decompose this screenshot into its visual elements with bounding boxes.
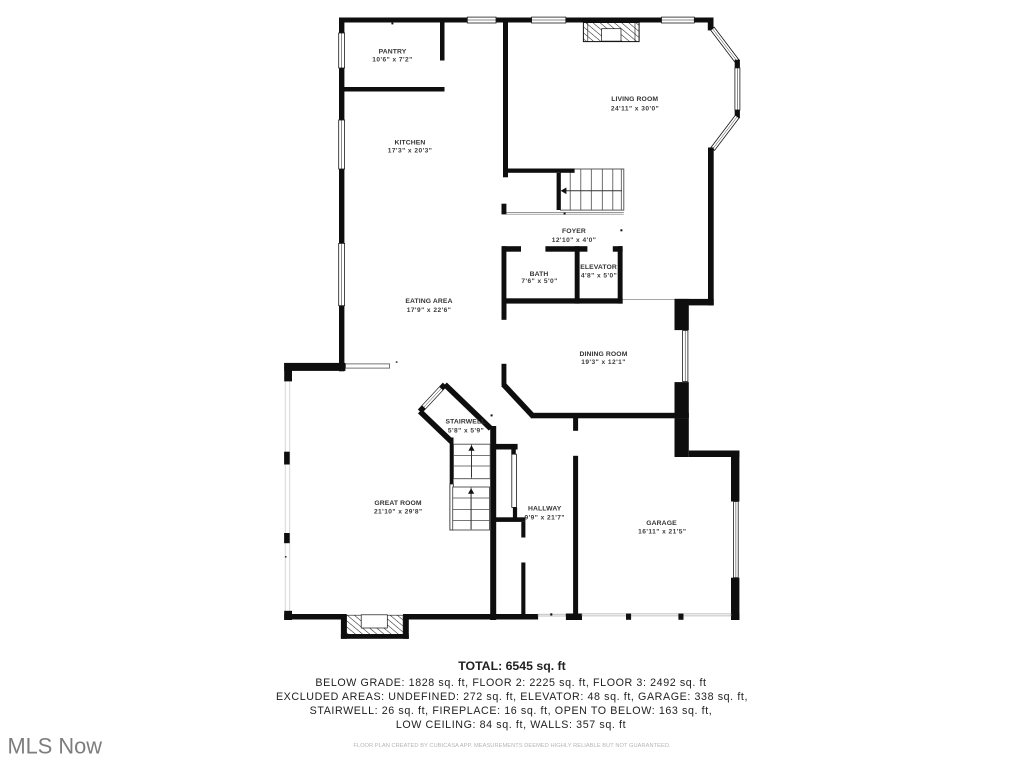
svg-text:17'9" x 22'6": 17'9" x 22'6"	[407, 307, 452, 314]
svg-text:7'6" x 5'0": 7'6" x 5'0"	[521, 278, 557, 285]
svg-text:LIVING ROOM: LIVING ROOM	[611, 96, 658, 103]
svg-text:STAIRWELL: 26 sq. ft, FIREPLAC: STAIRWELL: 26 sq. ft, FIREPLACE: 16 sq. …	[310, 705, 713, 717]
svg-text:4'8" x 5'0": 4'8" x 5'0"	[581, 273, 617, 280]
svg-text:HALLWAY: HALLWAY	[528, 505, 562, 512]
svg-text:19'3" x 12'1": 19'3" x 12'1"	[581, 359, 626, 366]
svg-text:FOYER: FOYER	[562, 228, 586, 235]
svg-text:5'8" x 5'9": 5'8" x 5'9"	[448, 428, 484, 435]
svg-text:GREAT ROOM: GREAT ROOM	[374, 500, 422, 507]
svg-text:STAIRWELL: STAIRWELL	[446, 418, 486, 425]
svg-text:16'11" x 21'5": 16'11" x 21'5"	[638, 529, 686, 536]
svg-text:EXCLUDED AREAS: UNDEFINED: 272: EXCLUDED AREAS: UNDEFINED: 272 sq. ft, E…	[276, 691, 748, 703]
svg-text:24'11" x 30'0": 24'11" x 30'0"	[611, 106, 659, 113]
svg-text:BELOW GRADE: 1828 sq. ft, FLOO: BELOW GRADE: 1828 sq. ft, FLOOR 2: 2225 …	[315, 677, 706, 689]
svg-text:FLOOR PLAN CREATED BY CUBICASA: FLOOR PLAN CREATED BY CUBICASA APP. MEAS…	[353, 743, 671, 749]
svg-text:KITCHEN: KITCHEN	[395, 140, 426, 147]
svg-text:MLS Now: MLS Now	[8, 734, 103, 759]
svg-text:12'10" x 4'0": 12'10" x 4'0"	[552, 237, 597, 244]
svg-text:DINING ROOM: DINING ROOM	[580, 351, 628, 358]
svg-text:17'3" x 20'3": 17'3" x 20'3"	[388, 148, 433, 155]
svg-text:21'10" x 29'8": 21'10" x 29'8"	[374, 509, 423, 516]
svg-text:TOTAL: 6545 sq. ft: TOTAL: 6545 sq. ft	[458, 659, 566, 673]
svg-text:ELEVATOR: ELEVATOR	[580, 264, 617, 271]
svg-text:LOW CEILING: 84 sq. ft, WALLS:: LOW CEILING: 84 sq. ft, WALLS: 357 sq. f…	[396, 719, 626, 731]
svg-text:GARAGE: GARAGE	[646, 520, 677, 527]
svg-text:PANTRY: PANTRY	[379, 49, 407, 56]
svg-text:9'9" x 21'7": 9'9" x 21'7"	[524, 514, 564, 521]
svg-text:10'6" x 7'2": 10'6" x 7'2"	[372, 57, 412, 64]
svg-text:EATING AREA: EATING AREA	[405, 298, 452, 305]
svg-text:BATH: BATH	[530, 271, 549, 278]
